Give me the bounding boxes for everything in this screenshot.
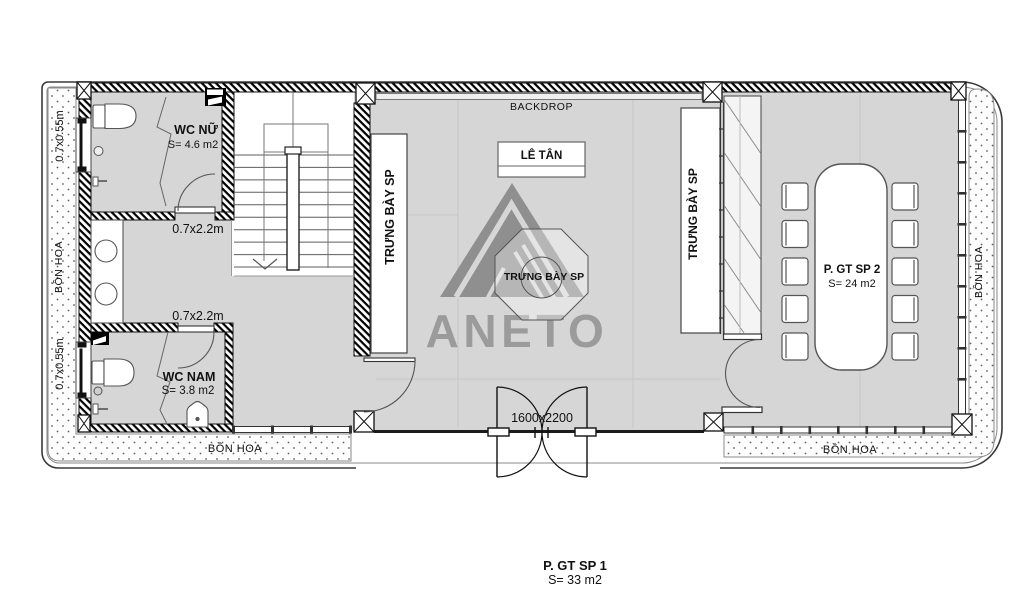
svg-text:S= 33 m2: S= 33 m2 — [548, 573, 602, 587]
svg-text:0.7x2.2m: 0.7x2.2m — [172, 309, 223, 323]
svg-text:1600x2200: 1600x2200 — [511, 411, 573, 425]
svg-text:TRƯNG BÀY SP: TRƯNG BÀY SP — [504, 270, 584, 283]
svg-text:WC NỮ: WC NỮ — [174, 122, 218, 137]
svg-text:BỒN HOA: BỒN HOA — [972, 246, 985, 298]
svg-text:S= 3.8 m2: S= 3.8 m2 — [162, 385, 215, 397]
svg-text:S= 24 m2: S= 24 m2 — [828, 278, 875, 290]
svg-text:P. GT SP 2: P. GT SP 2 — [824, 264, 880, 276]
svg-text:BACKDROP: BACKDROP — [510, 101, 573, 113]
svg-text:0.7x2.2m: 0.7x2.2m — [172, 222, 223, 236]
svg-text:LÊ TÂN: LÊ TÂN — [521, 149, 563, 162]
svg-text:S= 4.6 m2: S= 4.6 m2 — [168, 139, 218, 151]
svg-text:P. GT SP 1: P. GT SP 1 — [543, 558, 607, 573]
svg-text:TRƯNG BÀY SP: TRƯNG BÀY SP — [685, 168, 700, 260]
svg-text:WC NAM: WC NAM — [163, 370, 216, 384]
svg-text:0.7x0.55m: 0.7x0.55m — [54, 110, 66, 161]
svg-text:0.7x0.55m: 0.7x0.55m — [54, 338, 66, 389]
svg-text:BỒN HOA: BỒN HOA — [823, 443, 877, 456]
svg-text:BỒN HOA: BỒN HOA — [208, 442, 262, 455]
svg-text:TRƯNG BÀY SP: TRƯNG BÀY SP — [382, 169, 397, 265]
svg-text:BỒN HOA: BỒN HOA — [52, 241, 65, 293]
